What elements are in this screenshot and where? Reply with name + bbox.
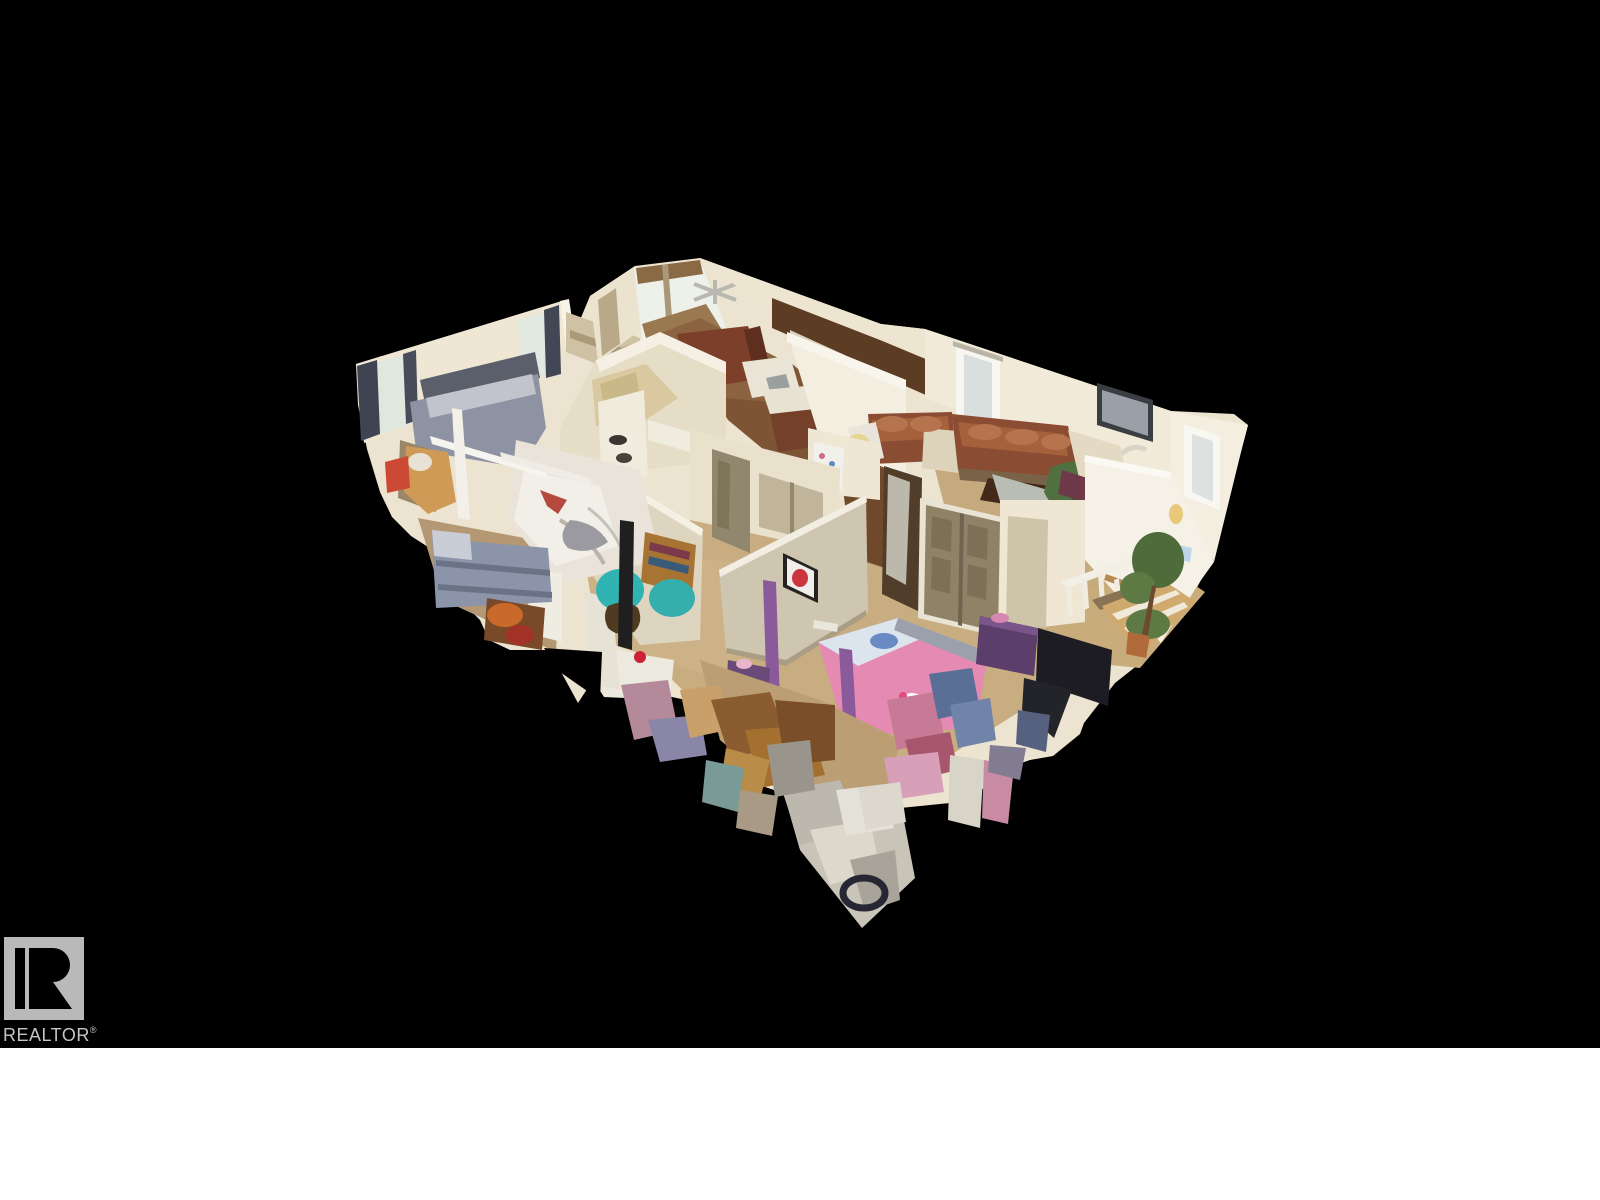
svg-text:REALTOR®: REALTOR® <box>3 1025 97 1045</box>
